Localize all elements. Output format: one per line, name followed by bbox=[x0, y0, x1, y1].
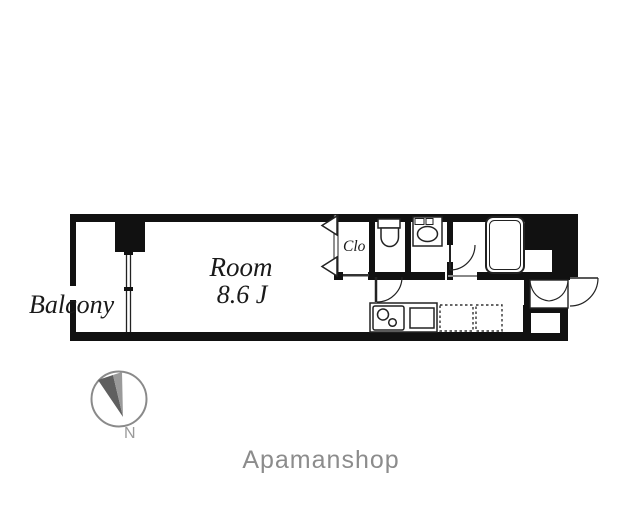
balcony-label: Balcony bbox=[29, 290, 115, 319]
wall-closet-toilet bbox=[369, 214, 375, 274]
wall-washroom-bath-upper bbox=[447, 214, 453, 245]
wall-left-upper bbox=[70, 214, 76, 286]
floor-plan-page: N Balcony Room 8.6 J Clo Apamanshop bbox=[0, 0, 640, 512]
room-size-label: 8.6 J bbox=[217, 280, 269, 309]
room-door-swing-arc bbox=[376, 277, 402, 302]
bathtub-icon bbox=[486, 217, 524, 273]
pillar-left bbox=[115, 214, 145, 252]
stove-burners-icon bbox=[373, 306, 404, 330]
wall-bottom bbox=[70, 332, 523, 341]
appliance-space-dashed bbox=[440, 305, 502, 331]
pillar-right bbox=[525, 214, 570, 250]
entrance-door-swing-arc bbox=[570, 278, 598, 306]
washbasin-icon bbox=[413, 217, 442, 246]
wall-genkan-left bbox=[524, 280, 530, 308]
kitchen-sink-icon bbox=[410, 308, 434, 328]
floor-plan-canvas: N Balcony Room 8.6 J Clo Apamanshop bbox=[0, 0, 640, 512]
brand-label: Apamanshop bbox=[242, 446, 399, 474]
north-label: N bbox=[124, 425, 136, 442]
closet-label: Clo bbox=[343, 238, 366, 255]
compass: N bbox=[92, 372, 147, 443]
pillar-right-connector bbox=[552, 248, 570, 274]
toilet-icon bbox=[378, 219, 400, 247]
wall-toilet-washroom bbox=[405, 214, 411, 274]
balcony-window-icon bbox=[124, 252, 133, 332]
shoe-cabinet-icon bbox=[530, 280, 568, 308]
wall-right bbox=[570, 214, 578, 277]
room-label: Room bbox=[209, 252, 273, 282]
folding-closet-door-icon bbox=[322, 215, 338, 276]
kitchen-counter bbox=[370, 303, 437, 332]
entrance-step-inner bbox=[531, 313, 560, 333]
closet-bottom-line bbox=[343, 274, 369, 277]
